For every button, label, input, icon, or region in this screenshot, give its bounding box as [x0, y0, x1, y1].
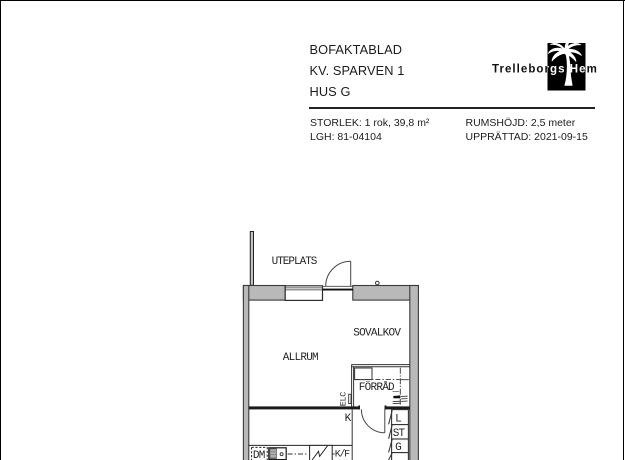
svg-text:ST: ST — [393, 428, 406, 440]
svg-text:UTEPLATS: UTEPLATS — [272, 256, 318, 268]
svg-text:DM: DM — [253, 450, 265, 460]
svg-text:K: K — [345, 413, 352, 425]
svg-text:ALLRUM: ALLRUM — [283, 352, 318, 364]
svg-text:ELC: ELC — [339, 392, 349, 407]
svg-text:FÖRRÅD: FÖRRÅD — [359, 381, 395, 394]
svg-text:SOVALKOV: SOVALKOV — [353, 327, 401, 339]
svg-text:G: G — [395, 442, 401, 454]
svg-text:K/F: K/F — [335, 449, 350, 460]
svg-text:L: L — [395, 413, 401, 425]
